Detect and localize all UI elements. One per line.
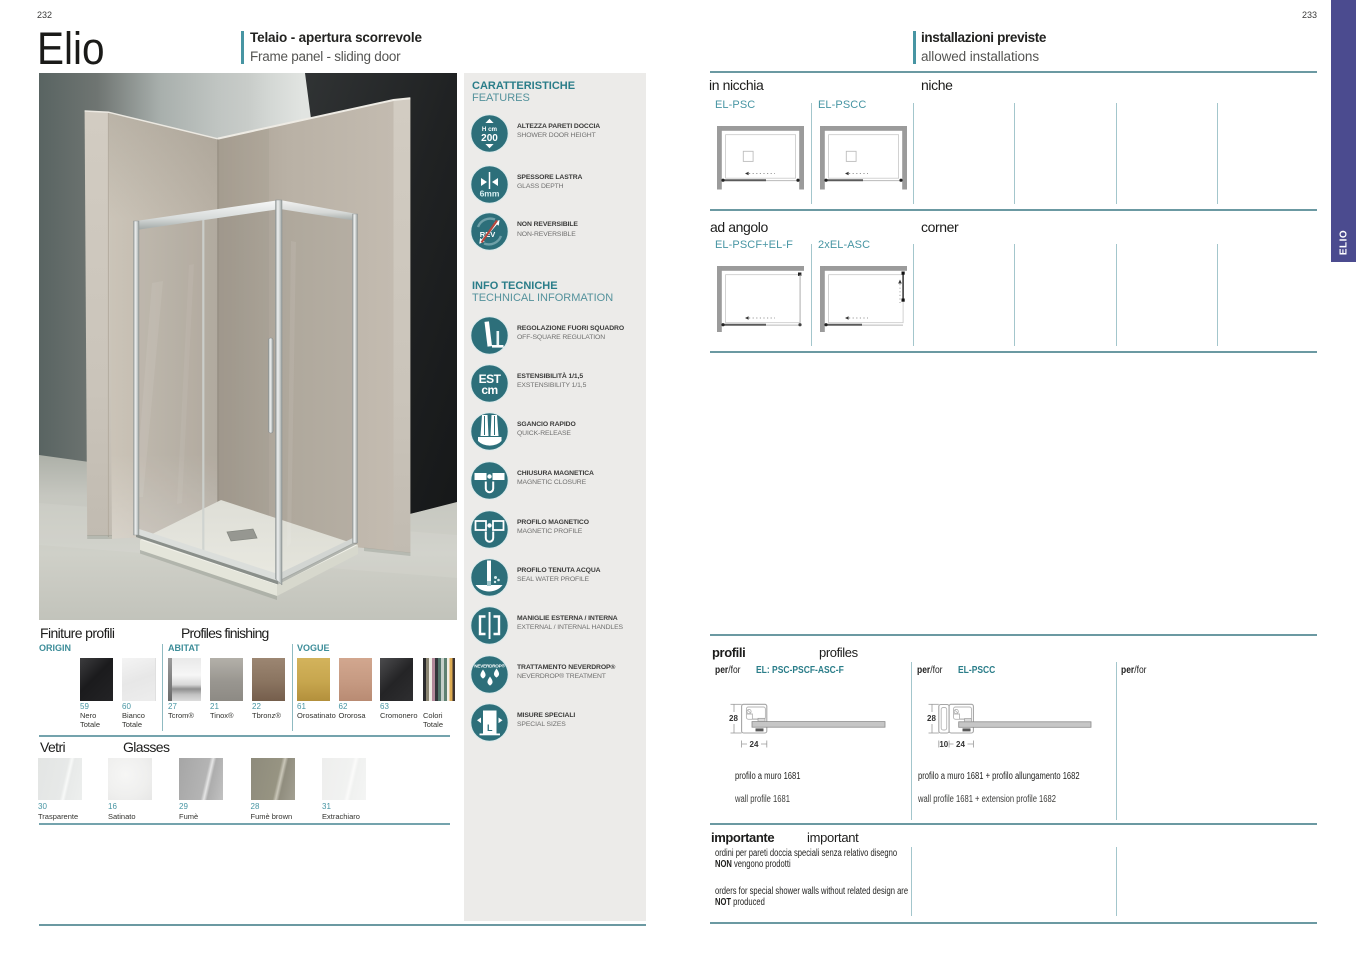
svg-text:cm: cm: [481, 383, 497, 397]
svg-text:28: 28: [927, 714, 936, 723]
svg-text:200: 200: [481, 133, 498, 144]
svg-text:H cm: H cm: [482, 126, 498, 133]
svg-text:6mm: 6mm: [480, 188, 500, 198]
svg-text:NEVERDROP®: NEVERDROP®: [474, 662, 505, 668]
svg-text:24: 24: [750, 740, 759, 749]
svg-text:L: L: [487, 723, 493, 733]
svg-text:28: 28: [729, 714, 738, 723]
svg-text:24: 24: [956, 740, 965, 749]
svg-text:10: 10: [939, 740, 948, 749]
